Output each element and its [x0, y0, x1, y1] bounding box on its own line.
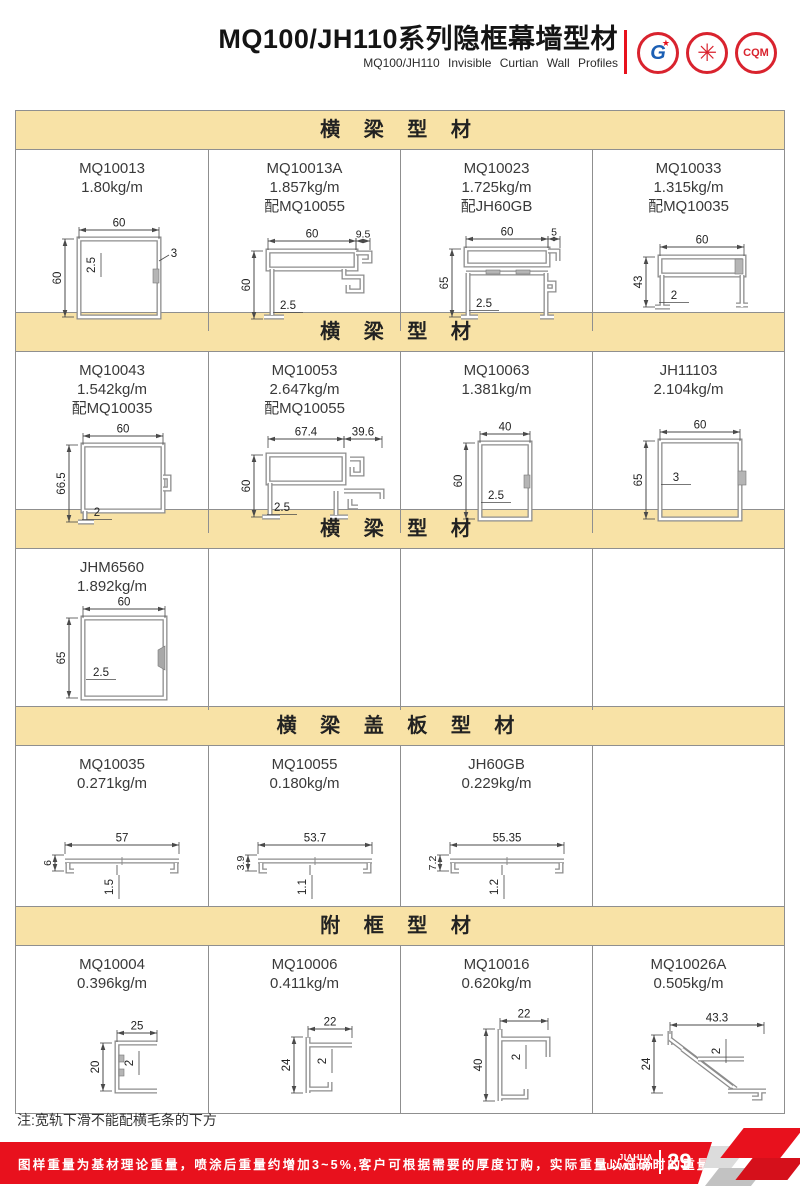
profile-drawing: 609.5602.5	[210, 217, 400, 329]
certification-seal-icon: ✳	[686, 32, 728, 74]
svg-text:3: 3	[171, 248, 177, 260]
svg-text:2.5: 2.5	[86, 257, 98, 273]
profile-code: MQ10016	[464, 955, 530, 974]
certification-logos: G ★ ✳ CQM	[637, 32, 777, 74]
svg-text:40: 40	[498, 421, 511, 433]
profile-drawing: 60602.53	[17, 217, 207, 329]
profile-cell: MQ100550.180kg/m53.73.91.1	[208, 746, 400, 907]
profile-drawing: 22242	[210, 999, 400, 1111]
profile-cell: MQ100631.381kg/m40602.5	[400, 352, 592, 533]
page-number: 29	[667, 1149, 691, 1175]
profile-drawing: 55.357.21.2	[402, 793, 592, 905]
section-header: 附 框 型 材	[16, 906, 784, 946]
svg-text:60: 60	[305, 228, 318, 240]
footer-deco-red-1	[720, 1128, 800, 1158]
svg-text:67.4: 67.4	[294, 426, 317, 438]
svg-text:39.6: 39.6	[351, 426, 373, 438]
svg-text:60: 60	[241, 479, 253, 492]
cqm-logo-icon: CQM	[735, 32, 777, 74]
svg-text:2.5: 2.5	[280, 300, 296, 312]
profile-weight: 1.857kg/m	[269, 178, 339, 197]
svg-text:5: 5	[551, 226, 557, 238]
svg-text:2: 2	[94, 507, 100, 519]
profile-weight: 1.542kg/m	[77, 380, 147, 399]
profile-code: MQ10033	[656, 159, 722, 178]
svg-text:25: 25	[131, 1021, 144, 1033]
svg-text:40: 40	[473, 1059, 485, 1072]
profile-cell: MQ100131.80kg/m60602.53	[16, 150, 208, 331]
svg-text:2: 2	[711, 1048, 723, 1054]
svg-text:65: 65	[56, 652, 68, 665]
brand-name: JIAHUA ALUMINIUM	[600, 1153, 653, 1172]
empty-cell	[208, 549, 400, 710]
section-row: JHM65601.892kg/m60652.5	[16, 549, 784, 706]
profile-match: 配MQ10055	[264, 197, 345, 216]
profile-weight: 2.104kg/m	[653, 380, 723, 399]
svg-text:2.5: 2.5	[488, 490, 504, 502]
profile-code: JH11103	[660, 361, 718, 380]
profile-cell: JHM65601.892kg/m60652.5	[16, 549, 208, 710]
profile-drawing: 605652.5	[402, 217, 592, 329]
svg-text:2.5: 2.5	[476, 298, 492, 310]
svg-text:66.5: 66.5	[56, 472, 68, 494]
profile-drawing: 22402	[402, 999, 592, 1111]
profile-drawing: 60653	[594, 419, 784, 531]
profile-code: JH60GB	[468, 755, 525, 774]
svg-text:60: 60	[118, 597, 131, 609]
profile-weight: 0.229kg/m	[461, 774, 531, 793]
profile-table: 横 梁 型 材MQ100131.80kg/m60602.53MQ10013A1.…	[15, 110, 785, 1114]
profile-cell: MQ100431.542kg/m配MQ100356066.52	[16, 352, 208, 533]
svg-text:57: 57	[116, 833, 129, 845]
footer-brand: JIAHUA ALUMINIUM 29	[600, 1149, 692, 1175]
profile-cell: MQ100331.315kg/m配MQ1003560432	[592, 150, 784, 331]
svg-text:9.5: 9.5	[355, 228, 370, 240]
svg-text:60: 60	[693, 419, 706, 431]
profile-drawing: 6066.52	[17, 419, 207, 531]
profile-drawing: 53.73.91.1	[210, 793, 400, 905]
svg-text:65: 65	[439, 276, 451, 289]
profile-cell: MQ100060.411kg/m22242	[208, 946, 400, 1113]
svg-text:55.35: 55.35	[492, 833, 521, 845]
profile-drawing: 43.3242	[594, 999, 784, 1111]
svg-text:22: 22	[323, 1017, 336, 1029]
svg-text:60: 60	[52, 271, 64, 284]
section-row: MQ100350.271kg/m5761.5MQ100550.180kg/m53…	[16, 746, 784, 906]
profile-drawing: 60432	[594, 217, 784, 329]
svg-text:2: 2	[317, 1058, 329, 1064]
svg-text:3.9: 3.9	[235, 856, 247, 871]
header-divider	[624, 30, 627, 74]
profile-weight: 1.80kg/m	[81, 178, 143, 197]
section-row: MQ100131.80kg/m60602.53MQ10013A1.857kg/m…	[16, 150, 784, 312]
profile-match: 配MQ10035	[72, 399, 153, 418]
brand-divider	[659, 1150, 661, 1174]
profile-code: JHM6560	[80, 558, 144, 577]
profile-weight: 1.381kg/m	[461, 380, 531, 399]
svg-text:1.2: 1.2	[489, 879, 501, 895]
profile-weight: 0.505kg/m	[653, 974, 723, 993]
profile-code: MQ10013	[79, 159, 145, 178]
profile-weight: 0.396kg/m	[77, 974, 147, 993]
profile-cell: MQ100350.271kg/m5761.5	[16, 746, 208, 907]
svg-text:3: 3	[672, 472, 678, 484]
profile-weight: 0.271kg/m	[77, 774, 147, 793]
profile-code: MQ10063	[464, 361, 530, 380]
empty-cell	[400, 549, 592, 710]
section-row: MQ100040.396kg/m25202MQ100060.411kg/m222…	[16, 946, 784, 1113]
svg-text:2: 2	[670, 290, 676, 302]
section-header: 横 梁 盖 板 型 材	[16, 706, 784, 746]
profile-code: MQ10006	[272, 955, 338, 974]
svg-text:60: 60	[113, 217, 126, 229]
svg-text:60: 60	[241, 278, 253, 291]
profile-match: 配JH60GB	[461, 197, 533, 216]
svg-text:1.1: 1.1	[297, 879, 309, 895]
empty-cell	[592, 746, 784, 907]
title-block: MQ100/JH110系列隐框幕墙型材 MQ100/JH110 Invisibl…	[218, 24, 618, 70]
profile-cell: JH111032.104kg/m60653	[592, 352, 784, 533]
profile-cell: MQ100160.620kg/m22402	[400, 946, 592, 1113]
profile-drawing: 60652.5	[17, 596, 207, 708]
svg-text:20: 20	[90, 1061, 102, 1074]
gb-certification-logo-icon: G ★	[637, 32, 679, 74]
profile-weight: 0.411kg/m	[270, 974, 339, 993]
profile-drawing: 5761.5	[17, 793, 207, 905]
profile-drawing: 25202	[17, 999, 207, 1111]
profile-match: 配MQ10055	[264, 399, 345, 418]
profile-code: MQ10043	[79, 361, 145, 380]
svg-text:60: 60	[453, 474, 465, 487]
profile-match: 配MQ10035	[648, 197, 729, 216]
svg-text:2: 2	[511, 1054, 523, 1060]
empty-cell	[592, 549, 784, 710]
profile-cell: MQ100532.647kg/m配MQ1005567.439.6602.5	[208, 352, 400, 533]
footer-deco-red-2	[735, 1158, 800, 1180]
profile-weight: 1.315kg/m	[653, 178, 723, 197]
svg-text:2.5: 2.5	[274, 502, 290, 514]
svg-text:60: 60	[500, 226, 513, 238]
svg-text:43: 43	[633, 275, 645, 288]
footnote: 注:宽轨下滑不能配横毛条的下方	[17, 1110, 217, 1130]
profile-weight: 2.647kg/m	[269, 380, 339, 399]
catalog-page: MQ100/JH110系列隐框幕墙型材 MQ100/JH110 Invisibl…	[0, 0, 800, 1200]
svg-text:60: 60	[695, 234, 708, 246]
profile-code: MQ10023	[464, 159, 530, 178]
svg-text:2.5: 2.5	[93, 667, 109, 679]
star-icon: ★	[662, 38, 670, 49]
page-header: MQ100/JH110系列隐框幕墙型材 MQ100/JH110 Invisibl…	[0, 24, 800, 84]
svg-text:43.3: 43.3	[705, 1013, 727, 1025]
svg-text:65: 65	[633, 473, 645, 486]
profile-code: MQ10053	[272, 361, 338, 380]
profile-cell: MQ100231.725kg/m配JH60GB605652.5	[400, 150, 592, 331]
profile-weight: 1.725kg/m	[461, 178, 531, 197]
svg-text:6: 6	[42, 860, 54, 866]
profile-weight: 0.180kg/m	[269, 774, 339, 793]
profile-cell: MQ10026A0.505kg/m43.3242	[592, 946, 784, 1113]
section-header: 横 梁 型 材	[16, 111, 784, 150]
profile-code: MQ10004	[79, 955, 145, 974]
svg-text:24: 24	[281, 1058, 293, 1071]
page-subtitle: MQ100/JH110 Invisible Curtian Wall Profi…	[218, 56, 618, 70]
svg-text:1.5: 1.5	[104, 879, 116, 895]
profile-weight: 1.892kg/m	[77, 577, 147, 596]
profile-code: MQ10035	[79, 755, 145, 774]
profile-code: MQ10013A	[267, 159, 343, 178]
svg-text:53.7: 53.7	[303, 833, 325, 845]
svg-text:2: 2	[124, 1060, 136, 1066]
profile-weight: 0.620kg/m	[461, 974, 531, 993]
profile-cell: MQ100040.396kg/m25202	[16, 946, 208, 1113]
section-row: MQ100431.542kg/m配MQ100356066.52MQ100532.…	[16, 352, 784, 509]
svg-text:24: 24	[641, 1057, 653, 1070]
svg-text:7.2: 7.2	[427, 856, 439, 871]
page-title: MQ100/JH110系列隐框幕墙型材	[218, 24, 618, 55]
svg-text:22: 22	[517, 1009, 530, 1021]
profile-cell: MQ10013A1.857kg/m配MQ10055609.5602.5	[208, 150, 400, 331]
profile-code: MQ10026A	[651, 955, 727, 974]
profile-cell: JH60GB0.229kg/m55.357.21.2	[400, 746, 592, 907]
svg-text:60: 60	[117, 423, 130, 435]
profile-code: MQ10055	[272, 755, 338, 774]
